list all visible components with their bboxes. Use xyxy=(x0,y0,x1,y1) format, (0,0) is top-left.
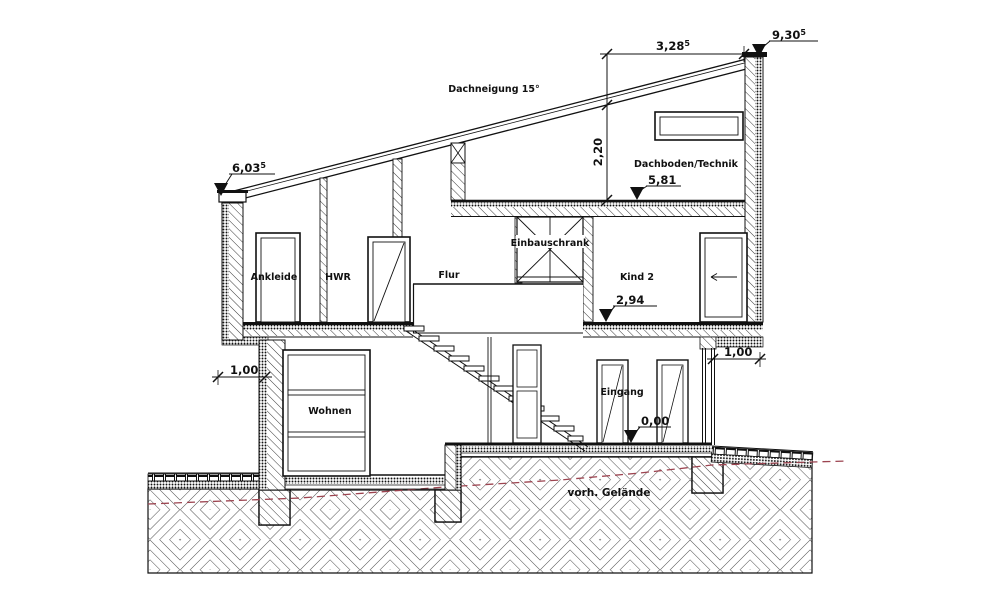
ground-section xyxy=(148,446,848,573)
built-in-closet xyxy=(516,217,585,282)
slab-upper-left xyxy=(222,324,413,346)
door-kind2 xyxy=(700,233,747,322)
annotation-roof-pitch: Dachneigung 15° xyxy=(448,84,540,95)
footing-left xyxy=(259,490,290,525)
dimension-attic-height: 2,20 xyxy=(591,54,612,205)
room-label-eingang: Eingang xyxy=(600,387,643,398)
svg-text:2,20: 2,20 xyxy=(591,138,605,166)
slab-ground-entrance xyxy=(445,444,712,457)
room-label-flur: Flur xyxy=(438,270,460,281)
level-marker-attic: 5,81 xyxy=(630,173,681,200)
svg-text:3,285: 3,285 xyxy=(656,39,690,53)
window-stairs xyxy=(513,345,541,443)
section-drawing: 6,035 9,305 5,81 2,94 0,00 xyxy=(0,0,993,600)
door-entrance-2 xyxy=(657,360,688,443)
wall-ankleide-hwr xyxy=(320,178,327,322)
window-attic xyxy=(655,112,743,140)
staircase xyxy=(404,326,588,451)
svg-text:1,00: 1,00 xyxy=(230,363,258,377)
svg-text:0,00: 0,00 xyxy=(641,414,669,428)
svg-text:1,00: 1,00 xyxy=(724,345,752,359)
room-label-einbauschrank: Einbauschrank xyxy=(511,238,590,249)
svg-text:6,035: 6,035 xyxy=(232,161,266,175)
room-label-dachboden: Dachboden/Technik xyxy=(634,159,739,170)
slab-attic xyxy=(451,201,763,217)
wall-exterior-left-upper xyxy=(222,203,243,340)
wall-flur-kind2 xyxy=(583,217,593,322)
room-label-kind2: Kind 2 xyxy=(620,272,654,283)
door-hwr xyxy=(368,237,410,322)
door-entrance-1 xyxy=(597,360,628,443)
split-level-step xyxy=(445,445,461,490)
wall-attic-left xyxy=(451,143,465,200)
walkway-left xyxy=(148,473,262,489)
svg-text:5,81: 5,81 xyxy=(648,173,676,187)
stairwell-rear-edge xyxy=(488,337,491,443)
room-label-wohnen: Wohnen xyxy=(308,406,352,417)
section-drawing-canvas: 6,035 9,305 5,81 2,94 0,00 xyxy=(0,0,993,600)
svg-text:9,305: 9,305 xyxy=(772,28,806,42)
level-marker-upper: 2,94 xyxy=(599,293,657,322)
room-label-hwr: HWR xyxy=(325,272,351,283)
footing-middle xyxy=(435,490,461,522)
slab-ground-living xyxy=(285,475,445,489)
svg-text:2,94: 2,94 xyxy=(616,293,644,307)
dimension-roof-top: 3,285 xyxy=(600,39,751,62)
wall-hwr-flur xyxy=(393,159,402,237)
annotation-existing-terrain: vorh. Gelände xyxy=(568,487,651,499)
stairwell-parapet xyxy=(413,284,583,333)
wall-exterior-left-ground xyxy=(259,340,285,490)
room-label-ankleide: Ankleide xyxy=(251,272,298,283)
